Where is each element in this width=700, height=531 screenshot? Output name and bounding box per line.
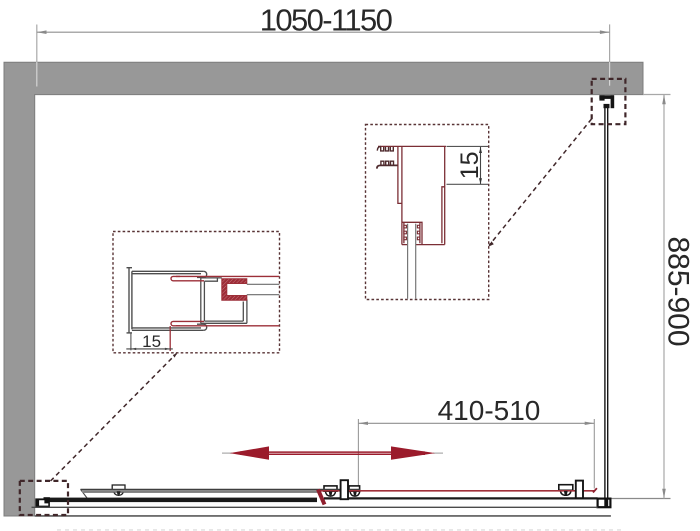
svg-text:885-900: 885-900 (661, 236, 694, 346)
svg-text:15: 15 (142, 332, 161, 351)
svg-text:410-510: 410-510 (438, 395, 541, 426)
svg-text:15: 15 (456, 151, 484, 179)
svg-text:1050-1150: 1050-1150 (260, 3, 393, 38)
